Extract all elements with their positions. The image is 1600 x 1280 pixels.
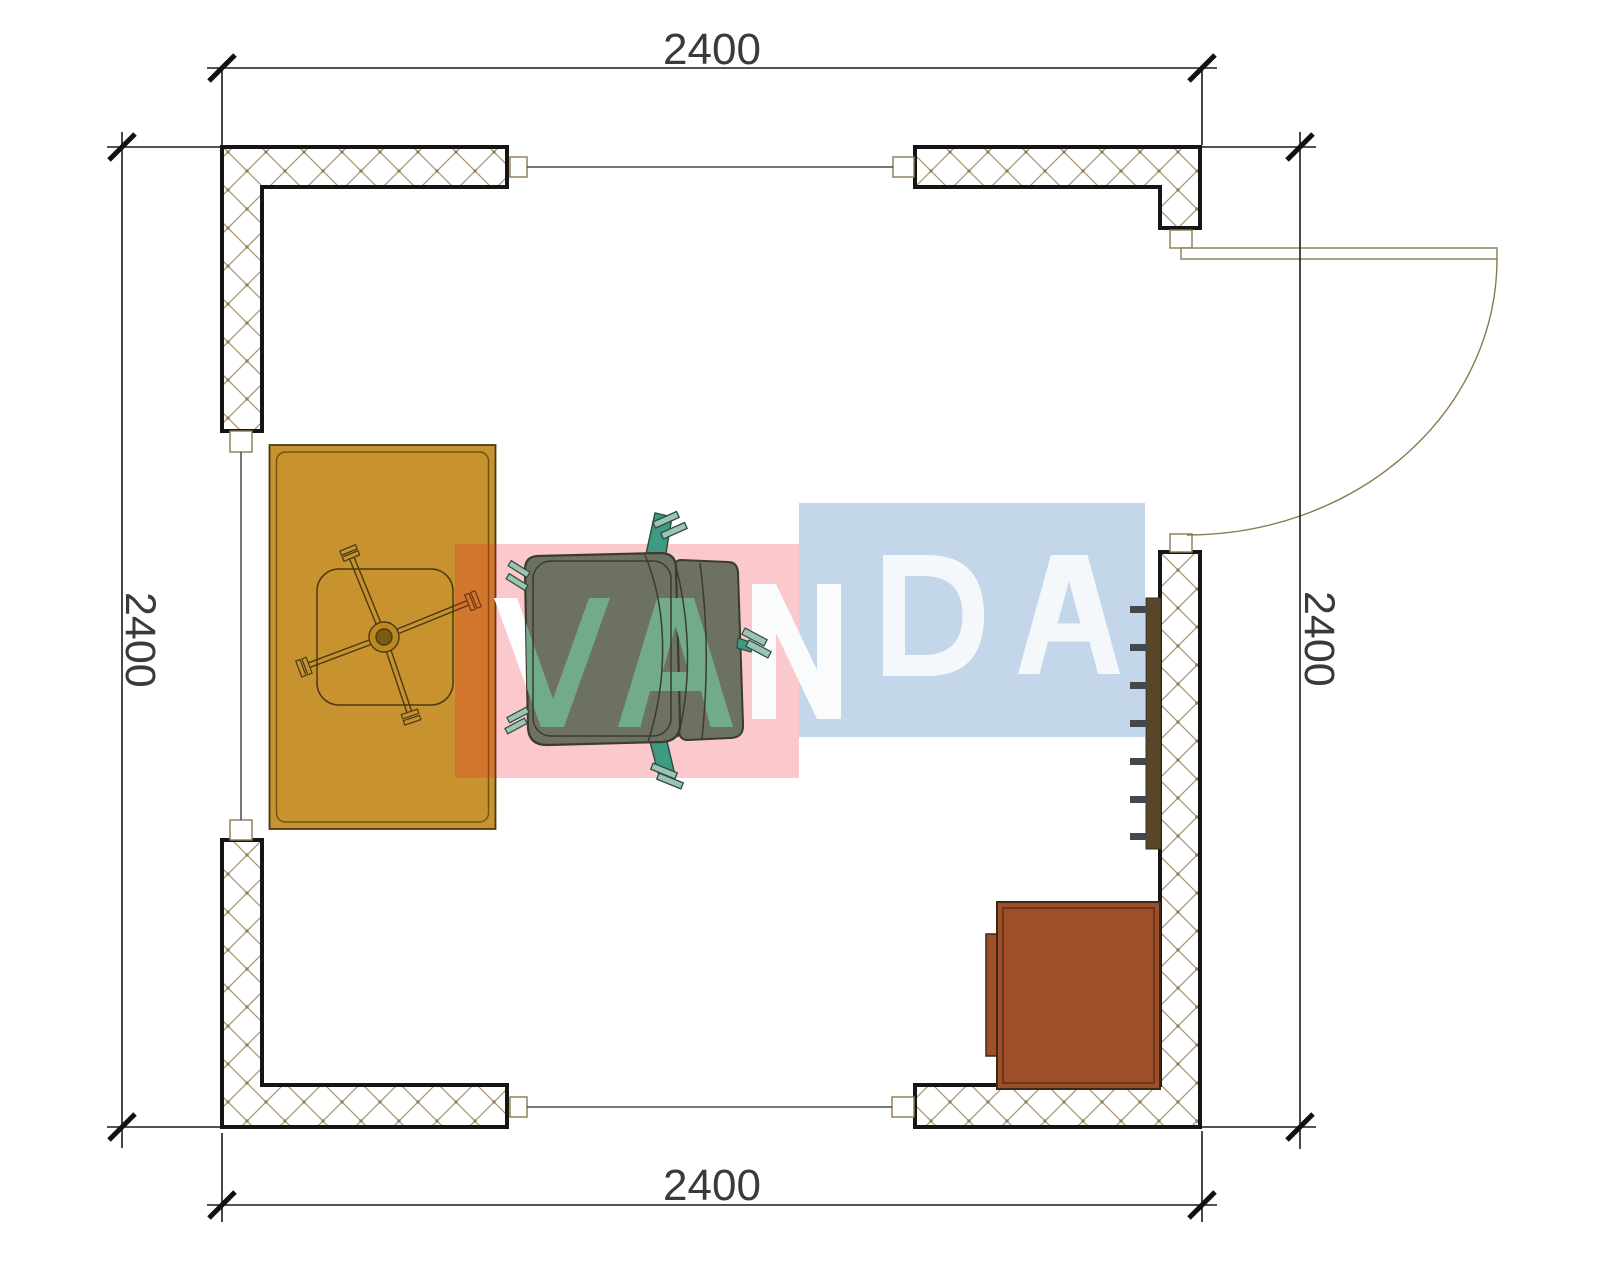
svg-text:2400: 2400 — [663, 25, 761, 74]
svg-text:2400: 2400 — [1295, 591, 1343, 687]
svg-text:2400: 2400 — [663, 1161, 761, 1210]
svg-text:2400: 2400 — [116, 592, 164, 688]
